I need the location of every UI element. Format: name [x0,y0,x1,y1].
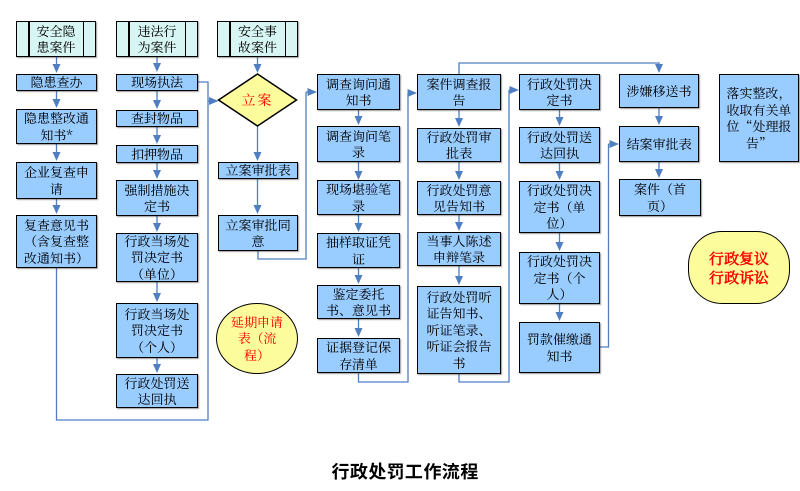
svg-text:立案: 立案 [242,90,274,110]
